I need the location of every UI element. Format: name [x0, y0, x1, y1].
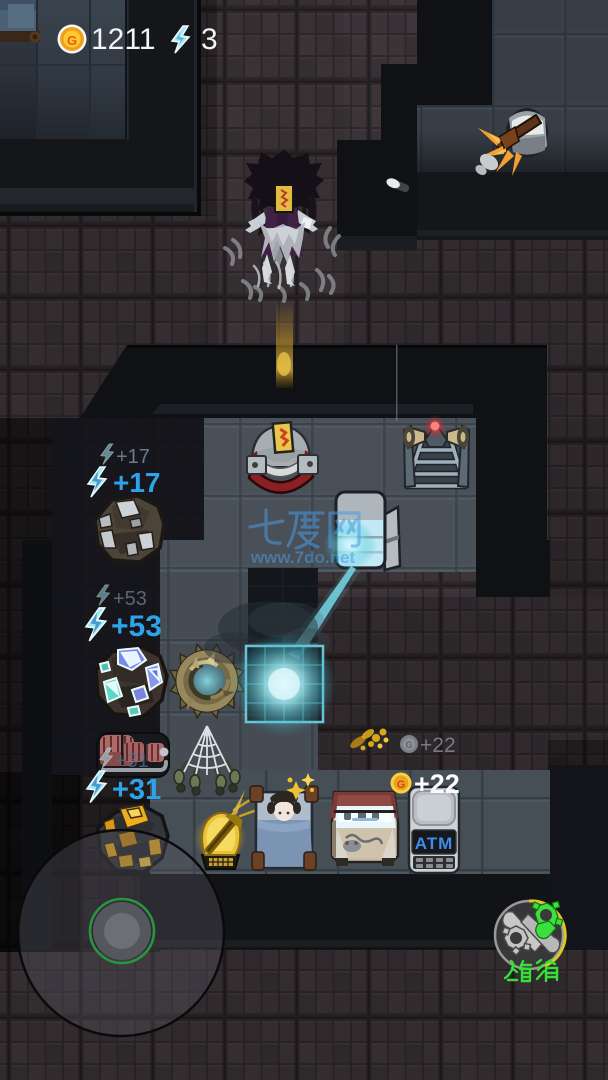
svg-text:3: 3 [201, 23, 218, 56]
svg-text:+22: +22 [420, 734, 456, 757]
svg-text:+53: +53 [111, 610, 162, 643]
svg-text:G: G [67, 33, 77, 48]
svg-text:+31: +31 [112, 774, 161, 806]
svg-text:G: G [397, 779, 406, 791]
svg-text:G: G [405, 740, 412, 750]
svg-text:+17: +17 [113, 467, 161, 498]
svg-text:+31: +31 [115, 750, 149, 772]
svg-text:ATM: ATM [415, 834, 454, 853]
svg-text:+17: +17 [116, 446, 150, 468]
svg-text:www.7do.net: www.7do.net [250, 548, 356, 567]
svg-text:+22: +22 [414, 769, 460, 799]
svg-text:+53: +53 [113, 588, 147, 610]
svg-text:1211: 1211 [91, 23, 156, 56]
